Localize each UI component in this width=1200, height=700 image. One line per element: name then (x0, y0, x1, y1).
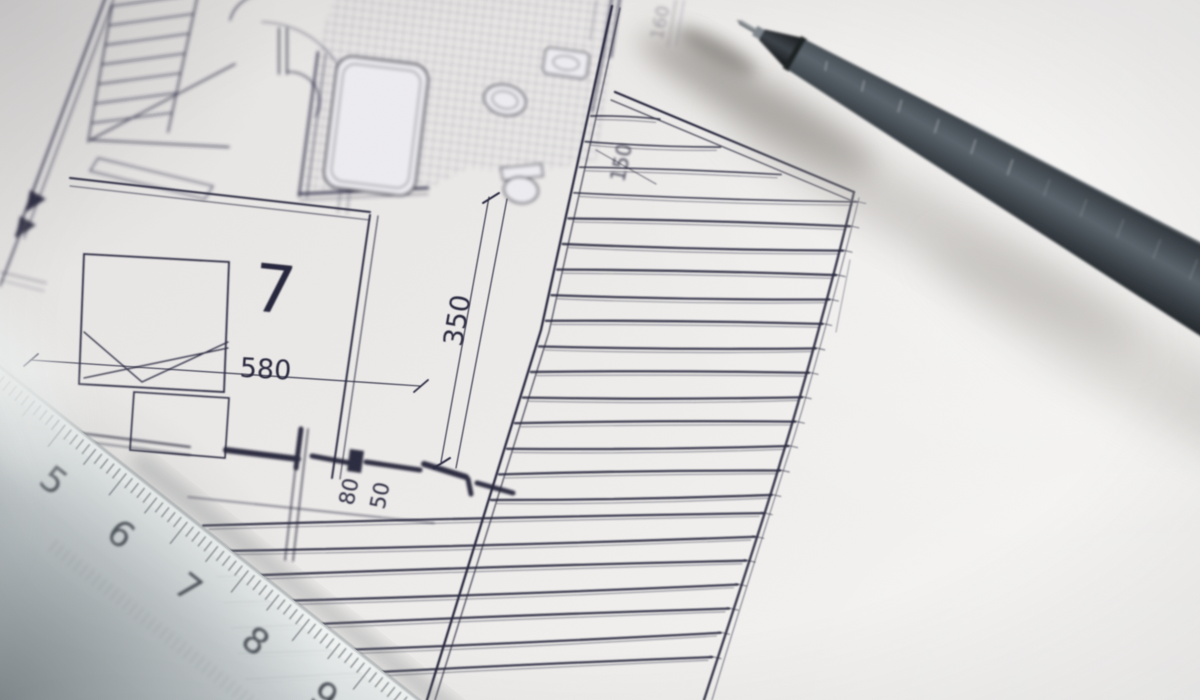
blueprint-photo: 7 580 350 80 50 150 160 4 (0, 0, 1200, 700)
photo-canvas: 7 580 350 80 50 150 160 4 (0, 0, 1200, 700)
grain-overlay (0, 0, 1200, 700)
